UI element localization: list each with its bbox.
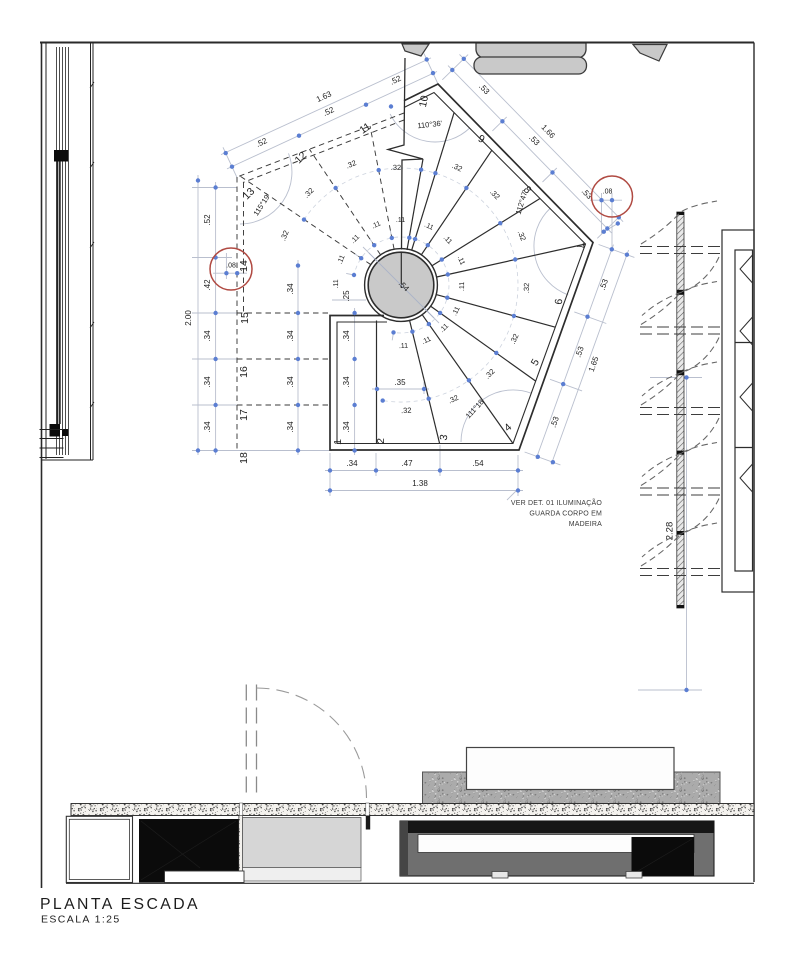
svg-text:.34: .34 <box>342 421 351 433</box>
svg-text:.11: .11 <box>396 217 405 224</box>
svg-text:.34: .34 <box>203 421 212 433</box>
svg-text:.11: .11 <box>459 282 466 291</box>
svg-text:18: 18 <box>238 452 250 464</box>
svg-text:.32: .32 <box>401 406 412 415</box>
svg-text:MADEIRA: MADEIRA <box>569 521 602 528</box>
svg-text:.11: .11 <box>333 279 340 288</box>
svg-text:1: 1 <box>332 439 344 445</box>
svg-text:15: 15 <box>239 312 251 324</box>
svg-text:.08: .08 <box>226 263 236 270</box>
svg-text:.34: .34 <box>346 459 358 468</box>
svg-text:2: 2 <box>375 438 387 444</box>
svg-text:PLANTA ESCADA: PLANTA ESCADA <box>40 896 200 913</box>
svg-text:.25: .25 <box>342 290 351 302</box>
svg-text:.34: .34 <box>286 330 295 342</box>
svg-text:2.00: 2.00 <box>184 310 193 326</box>
svg-text:.34: .34 <box>203 376 212 388</box>
svg-text:ESCALA 1:25: ESCALA 1:25 <box>41 914 121 926</box>
svg-text:.11: .11 <box>399 343 409 350</box>
svg-text:.54: .54 <box>472 459 484 468</box>
svg-text:2.28: 2.28 <box>665 522 676 541</box>
svg-text:17: 17 <box>238 409 250 421</box>
svg-text:.32: .32 <box>522 283 531 294</box>
svg-text:14: 14 <box>238 260 250 272</box>
svg-text:16: 16 <box>238 366 250 378</box>
svg-text:.34: .34 <box>203 330 212 342</box>
svg-text:.35: .35 <box>394 378 406 387</box>
svg-text:.34: .34 <box>342 376 351 388</box>
svg-text:.52: .52 <box>203 214 212 226</box>
svg-text:.42: .42 <box>203 279 212 291</box>
svg-text:.34: .34 <box>286 283 295 295</box>
svg-text:.32: .32 <box>391 163 402 172</box>
svg-text:.08: .08 <box>603 189 613 196</box>
svg-text:VER DET. 01 ILUMINAÇÃO: VER DET. 01 ILUMINAÇÃO <box>511 498 602 507</box>
svg-text:.34: .34 <box>286 376 295 388</box>
svg-text:.34: .34 <box>286 421 295 433</box>
svg-text:.34: .34 <box>342 330 351 342</box>
svg-text:GUARDA CORPO EM: GUARDA CORPO EM <box>529 511 602 518</box>
svg-text:1.38: 1.38 <box>412 479 428 488</box>
svg-text:.47: .47 <box>401 459 413 468</box>
